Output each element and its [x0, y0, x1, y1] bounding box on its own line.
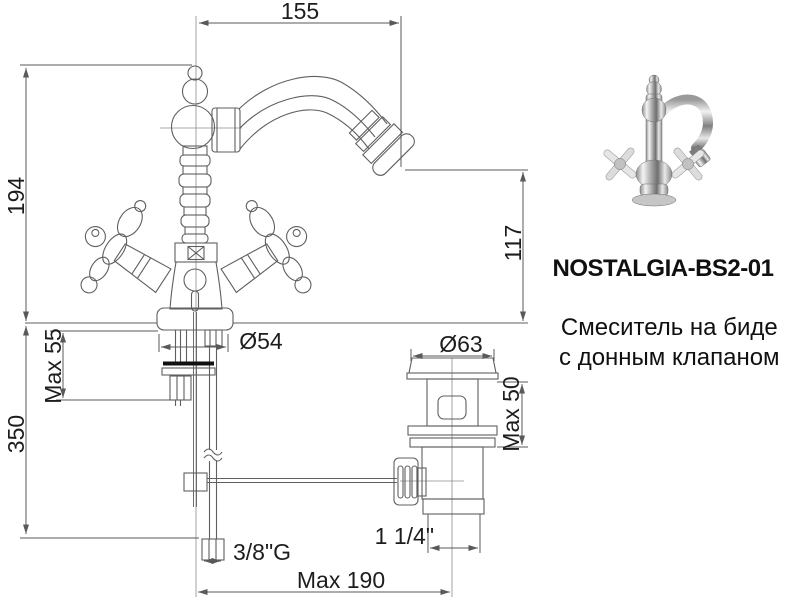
- dim-label-body-diameter: Ø54: [239, 328, 283, 354]
- product-panel: NOSTALGIA-BS2-01 Смеситель на биде с дон…: [540, 0, 785, 610]
- product-photo: [576, 64, 748, 228]
- product-code: NOSTALGIA-BS2-01: [540, 255, 785, 283]
- dim-label-supply-length: 350: [3, 415, 29, 453]
- dim-label-height: 194: [3, 177, 29, 216]
- faucet-drawing: [59, 66, 418, 560]
- left-handle: [59, 185, 194, 325]
- drain-valve-drawing: [394, 358, 498, 514]
- dim-label-spout-reach: 155: [281, 0, 319, 24]
- dim-label-flange-diameter: Ø63: [439, 331, 482, 357]
- right-handle: [198, 185, 333, 325]
- centerlines: [160, 16, 464, 597]
- dim-label-deck-max: Max 55: [40, 328, 66, 403]
- datasheet-page: 155 194 350 Max 55 117 Ø54 Ø63 Max 50 3/…: [0, 0, 785, 610]
- dim-label-rod-reach: Max 190: [297, 567, 385, 593]
- product-description-line-1: Смеситель на биде: [534, 314, 785, 342]
- dim-label-drain-deck-max: Max 50: [498, 376, 524, 451]
- dim-label-drain-thread: 1 1/4": [375, 523, 434, 549]
- product-description-line-2: с донным клапаном: [534, 344, 785, 372]
- dimension-labels: 155 194 350 Max 55 117 Ø54 Ø63 Max 50 3/…: [3, 0, 526, 593]
- photo-left-handle: [602, 146, 637, 181]
- dim-label-spout-height: 117: [500, 225, 526, 262]
- dim-label-supply-thread: 3/8"G: [233, 539, 291, 565]
